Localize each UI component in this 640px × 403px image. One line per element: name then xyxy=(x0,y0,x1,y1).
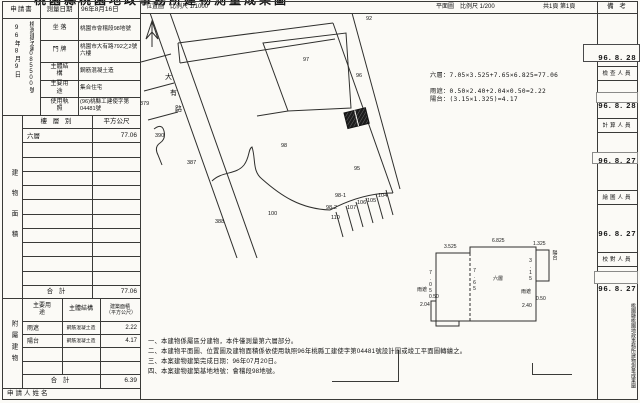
application-row-label: 使用執照 xyxy=(41,97,78,115)
floor-plan-dimension-label: 0.50 xyxy=(536,297,546,303)
application-row-value: 桃園市大有路792之2號六樓 xyxy=(79,40,140,62)
floor-plan-dimension-label: 6.825 xyxy=(492,239,505,245)
floor-plan-title: 平面圖 xyxy=(436,4,454,10)
floor-plan-dimension-label: 2.04 xyxy=(420,303,430,309)
annex-row-structure: 鋼筋混凝土造 xyxy=(63,334,99,347)
annex-header-area: 建築面積（平方公尺） xyxy=(101,298,139,321)
parcel-number-label: 98 xyxy=(281,143,287,149)
grid-line xyxy=(22,185,140,186)
parcel-number-label: 98-1 xyxy=(335,193,346,199)
receipt-number-vertical: 桃測建字第085500號 xyxy=(24,21,34,113)
applicant-name-label: 申請人姓名 xyxy=(3,388,140,400)
parcel-number-label: 388 xyxy=(215,219,224,225)
floor-plan-dimension-label: 雨遮 xyxy=(417,288,427,294)
page-info: 共1頁 第1頁 xyxy=(543,4,575,10)
divider-left-panel xyxy=(140,1,141,399)
grid-line xyxy=(22,157,140,158)
date-stamp: 96. 8. 28 xyxy=(598,100,637,111)
parcel-number-label: 100 xyxy=(268,211,277,217)
parcel-number-label: 107 xyxy=(347,205,356,211)
road-name-char: 有 xyxy=(170,90,177,97)
grid-line xyxy=(597,80,638,81)
parcel-number-label: 95 xyxy=(354,166,360,172)
floor-plan-dimension-label: 陽台 xyxy=(551,250,557,260)
note-line: 一、本建物係屬區分建物，本件僅測量第六層部分。 xyxy=(148,337,596,347)
application-row-value: 集合住宅 xyxy=(79,80,140,97)
parcel-number-label: 390 xyxy=(155,133,164,139)
grid-line xyxy=(22,228,140,229)
sheet: 桃園縣桃園地政事務所建物測量成果圖 xyxy=(0,0,640,403)
application-row-value: 桃園市會稽段98地號 xyxy=(79,18,140,40)
floor-plan-scale: 比例尺 1/200 xyxy=(460,4,495,10)
grid-line xyxy=(22,334,140,335)
annex-row-structure: 鋼筋混凝土造 xyxy=(63,321,99,334)
floor-plan-dimension-label: 3.525 xyxy=(444,245,457,251)
parcel-number-label: 92 xyxy=(366,16,372,22)
note-line: 二、本建物平面圖、位置圖及建物面積係依使用執照96年桃縣工建使字第04481號設… xyxy=(148,347,596,357)
parcel-number-label: 98-2 xyxy=(326,205,337,211)
grid-line xyxy=(22,271,140,272)
area-row-sqm: 77.06 xyxy=(93,128,137,142)
calculation-line: 六層：7.05×3.525+7.65×6.825=77.06 xyxy=(430,70,558,79)
grid-line xyxy=(22,214,140,215)
location-map-title: 位置圖 xyxy=(146,4,164,10)
remarks-vertical-note: 桃園縣桃園地政事務所建物測量成果圖 xyxy=(600,303,636,392)
floor-plan-dimension-label: 7.05 xyxy=(427,270,433,294)
staff-role-label: 繪圖人員 xyxy=(598,191,637,203)
survey-date-label: 測量日期 xyxy=(41,1,78,18)
grid-line xyxy=(22,361,140,362)
grid-line xyxy=(22,199,140,200)
annex-total-value: 6.39 xyxy=(101,374,137,388)
parcel-number-label: 96 xyxy=(356,73,362,79)
annex-row-use: 陽台 xyxy=(23,334,61,347)
area-row-floor: 六層 xyxy=(23,128,89,142)
date-stamp: 96. 8. 28 xyxy=(598,52,637,63)
floor-plan-dimension-label: 3.15 xyxy=(527,258,533,282)
grid-line xyxy=(597,266,638,267)
grid-line xyxy=(22,347,140,348)
area-sqm-header: 平方公尺 xyxy=(93,115,140,128)
floor-plan-dimension-label: 1.325 xyxy=(533,242,546,248)
grid-line xyxy=(22,242,140,243)
note-line: 三、本案建物建築完成日期：96年07月20日。 xyxy=(148,357,596,367)
grid-line xyxy=(597,132,638,133)
receipt-date-vertical: 96年8月9日 xyxy=(10,24,20,112)
date-stamp: 96. 8. 27 xyxy=(598,228,637,239)
note-line: 四、本案建物建築基地地號：會稽段98地號。 xyxy=(148,367,596,377)
annex-row-area: 4.17 xyxy=(101,334,137,347)
calculation-line: 陽台：(3.15×1.325)=4.17 xyxy=(430,94,518,103)
staff-role-label: 計算人員 xyxy=(598,119,637,131)
road-name-char: 大 xyxy=(165,74,172,81)
application-row-value: 鋼筋混凝土造 xyxy=(79,62,140,80)
location-map-scale: 比例尺 1/1000 xyxy=(170,4,208,10)
notes-block: 一、本建物係屬區分建物，本件僅測量第六層部分。二、本建物平面圖、位置圖及建物面積… xyxy=(148,337,596,383)
north-arrow-icon xyxy=(146,21,158,47)
area-total-value: 77.06 xyxy=(93,285,137,298)
application-form-label: 申請書 xyxy=(3,1,40,18)
annex-header-use: 主要用途 xyxy=(23,298,61,321)
survey-date-value: 96年8月16日 xyxy=(79,1,140,18)
application-row-label: 坐 落 xyxy=(41,18,78,40)
building-footprint xyxy=(344,108,369,129)
area-table-side-label: 建物面積 xyxy=(6,135,20,285)
grid-line xyxy=(22,142,140,143)
annex-row-use: 雨遮 xyxy=(23,321,61,334)
floor-plan-dimension-label: 2.40 xyxy=(522,304,532,310)
date-stamp: 96. 8. 27 xyxy=(598,283,637,294)
floor-plan-dimension-label: 雨遮 xyxy=(521,290,531,296)
application-row-value: (96)桃縣工建使字第04481號 xyxy=(79,97,140,115)
application-row-label: 主要用途 xyxy=(41,80,78,97)
parcel-number-label: 387 xyxy=(187,160,196,166)
area-floor-header: 樓 層 別 xyxy=(23,115,91,128)
parcel-number-label: 104 xyxy=(378,193,387,199)
area-total-label: 合 計 xyxy=(23,285,91,298)
application-row-label: 門 牌 xyxy=(41,40,78,62)
parcel-number-label: 110 xyxy=(331,215,340,221)
annex-header-structure: 主體結構 xyxy=(63,298,99,321)
floor-plan-dimension-label: 六層 xyxy=(493,277,503,283)
application-row-label: 主體結構 xyxy=(41,62,78,80)
grid-line xyxy=(22,171,140,172)
staff-role-label: 校對人員 xyxy=(598,253,637,265)
annex-total-label: 合 計 xyxy=(23,374,99,388)
remarks-header: 備 考 xyxy=(598,1,637,13)
floor-plan-dimension-label: 0.50 xyxy=(429,295,439,301)
date-stamp: 96. 8. 27 xyxy=(598,155,637,166)
parcel-number-label: 379 xyxy=(140,101,149,107)
staff-role-label: 檢查人員 xyxy=(598,67,637,79)
grid-line xyxy=(22,256,140,257)
annex-row-area: 2.22 xyxy=(101,321,137,334)
annex-table-side-label: 附屬建物 xyxy=(6,303,20,383)
grid-line xyxy=(22,374,140,375)
parcel-number-label: 97 xyxy=(303,57,309,63)
map-geometry xyxy=(141,13,549,326)
border-left xyxy=(2,1,3,400)
header-strip-line xyxy=(140,13,637,14)
grid-line xyxy=(597,204,638,205)
parcel-number-label: 105 xyxy=(367,198,376,204)
floor-plan-dimension-label: 7.65 xyxy=(471,268,477,292)
road-name-char: 路 xyxy=(175,106,182,113)
parcel-number-label: 106 xyxy=(357,200,366,206)
